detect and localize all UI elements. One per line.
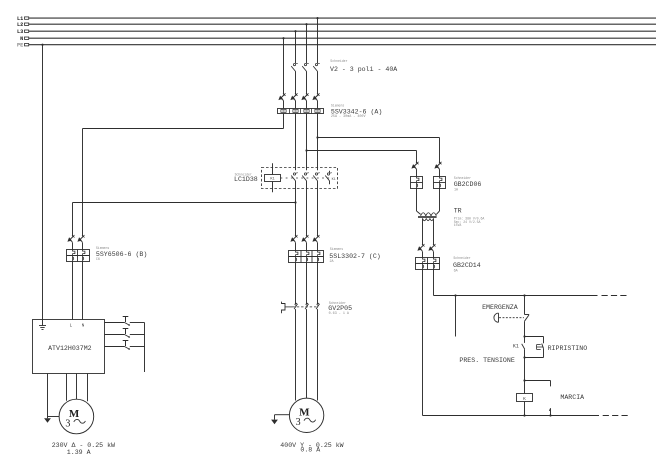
svg-text:M: M: [69, 408, 80, 420]
svg-text:Schneider: Schneider: [454, 176, 471, 180]
svg-text:TR: TR: [454, 208, 462, 215]
svg-text:25A - 30mA - 400V: 25A - 30mA - 400V: [331, 115, 367, 119]
svg-text:K1: K1: [513, 344, 519, 350]
svg-text:0.63 - 1 A: 0.63 - 1 A: [329, 312, 350, 316]
svg-text:LC1D38: LC1D38: [234, 176, 258, 183]
svg-text:Siemens: Siemens: [96, 246, 109, 250]
svg-text:N: N: [20, 36, 23, 42]
svg-text:K1: K1: [270, 178, 274, 182]
svg-text:1.39 A: 1.39 A: [67, 449, 91, 456]
svg-text:3: 3: [65, 418, 70, 429]
svg-text:L2: L2: [17, 22, 23, 28]
svg-text:GB2CD14: GB2CD14: [453, 262, 481, 269]
svg-text:0.8 A: 0.8 A: [300, 447, 320, 454]
svg-text:GB2CD06: GB2CD06: [454, 181, 482, 188]
svg-text:Siemens: Siemens: [331, 104, 344, 108]
svg-text:MARCIA: MARCIA: [560, 394, 584, 401]
svg-text:L: L: [70, 324, 73, 328]
svg-text:Siemens: Siemens: [330, 247, 343, 251]
svg-text:5SL3302-7 (C): 5SL3302-7 (C): [329, 253, 380, 260]
svg-text:L3: L3: [17, 29, 23, 35]
svg-text:EMERGENZA: EMERGENZA: [482, 304, 518, 311]
svg-text:V2 - 3 poli - 40A: V2 - 3 poli - 40A: [330, 66, 397, 73]
svg-text:RIPRISTINO: RIPRISTINO: [548, 345, 588, 352]
svg-text:1A: 1A: [454, 188, 459, 192]
svg-text:15VA: 15VA: [454, 223, 462, 227]
svg-text:6A: 6A: [454, 269, 459, 273]
svg-text:C6: C6: [96, 258, 100, 262]
svg-text:Schneider: Schneider: [453, 256, 470, 260]
svg-text:5SY6506-6 (B): 5SY6506-6 (B): [96, 251, 147, 258]
svg-text:PRES. TENSIONE: PRES. TENSIONE: [459, 357, 514, 364]
svg-text:M: M: [299, 407, 310, 419]
svg-text:L1: L1: [17, 16, 23, 22]
svg-text:K1: K1: [332, 178, 336, 182]
svg-text:N: N: [82, 324, 85, 328]
svg-text:2A: 2A: [330, 260, 335, 264]
svg-text:K: K: [523, 396, 526, 402]
svg-text:Schneider: Schneider: [330, 59, 347, 63]
svg-text:PE: PE: [17, 43, 23, 49]
svg-text:ATV12H037M2: ATV12H037M2: [48, 345, 92, 352]
svg-text:3: 3: [296, 417, 301, 428]
